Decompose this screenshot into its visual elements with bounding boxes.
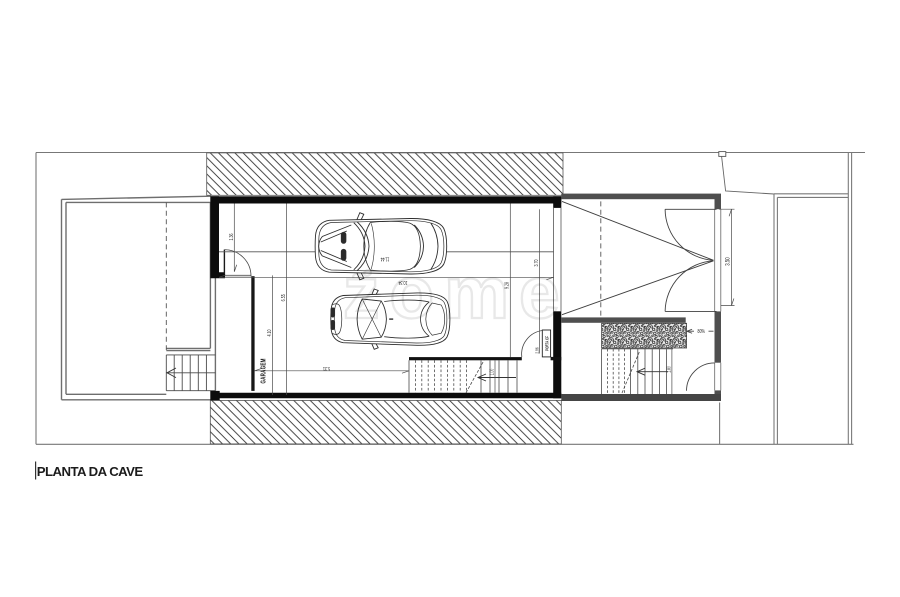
svg-text:zome: zome xyxy=(343,253,570,334)
svg-text:1.80: 1.80 xyxy=(666,366,672,373)
svg-text:80%: 80% xyxy=(698,329,705,335)
svg-text:PORTA CF: PORTA CF xyxy=(544,336,550,351)
svg-text:GARAGEM: GARAGEM xyxy=(259,358,267,383)
svg-text:PLANTA DA CAVE: PLANTA DA CAVE xyxy=(37,464,144,479)
svg-text:5.31: 5.31 xyxy=(323,365,330,372)
svg-text:3.50: 3.50 xyxy=(725,257,732,265)
svg-text:1.36: 1.36 xyxy=(228,233,235,240)
svg-text:1.00: 1.00 xyxy=(489,368,495,375)
svg-text:4.10: 4.10 xyxy=(266,329,273,336)
svg-text:2.86: 2.86 xyxy=(534,347,540,354)
svg-text:6.55: 6.55 xyxy=(280,294,287,301)
